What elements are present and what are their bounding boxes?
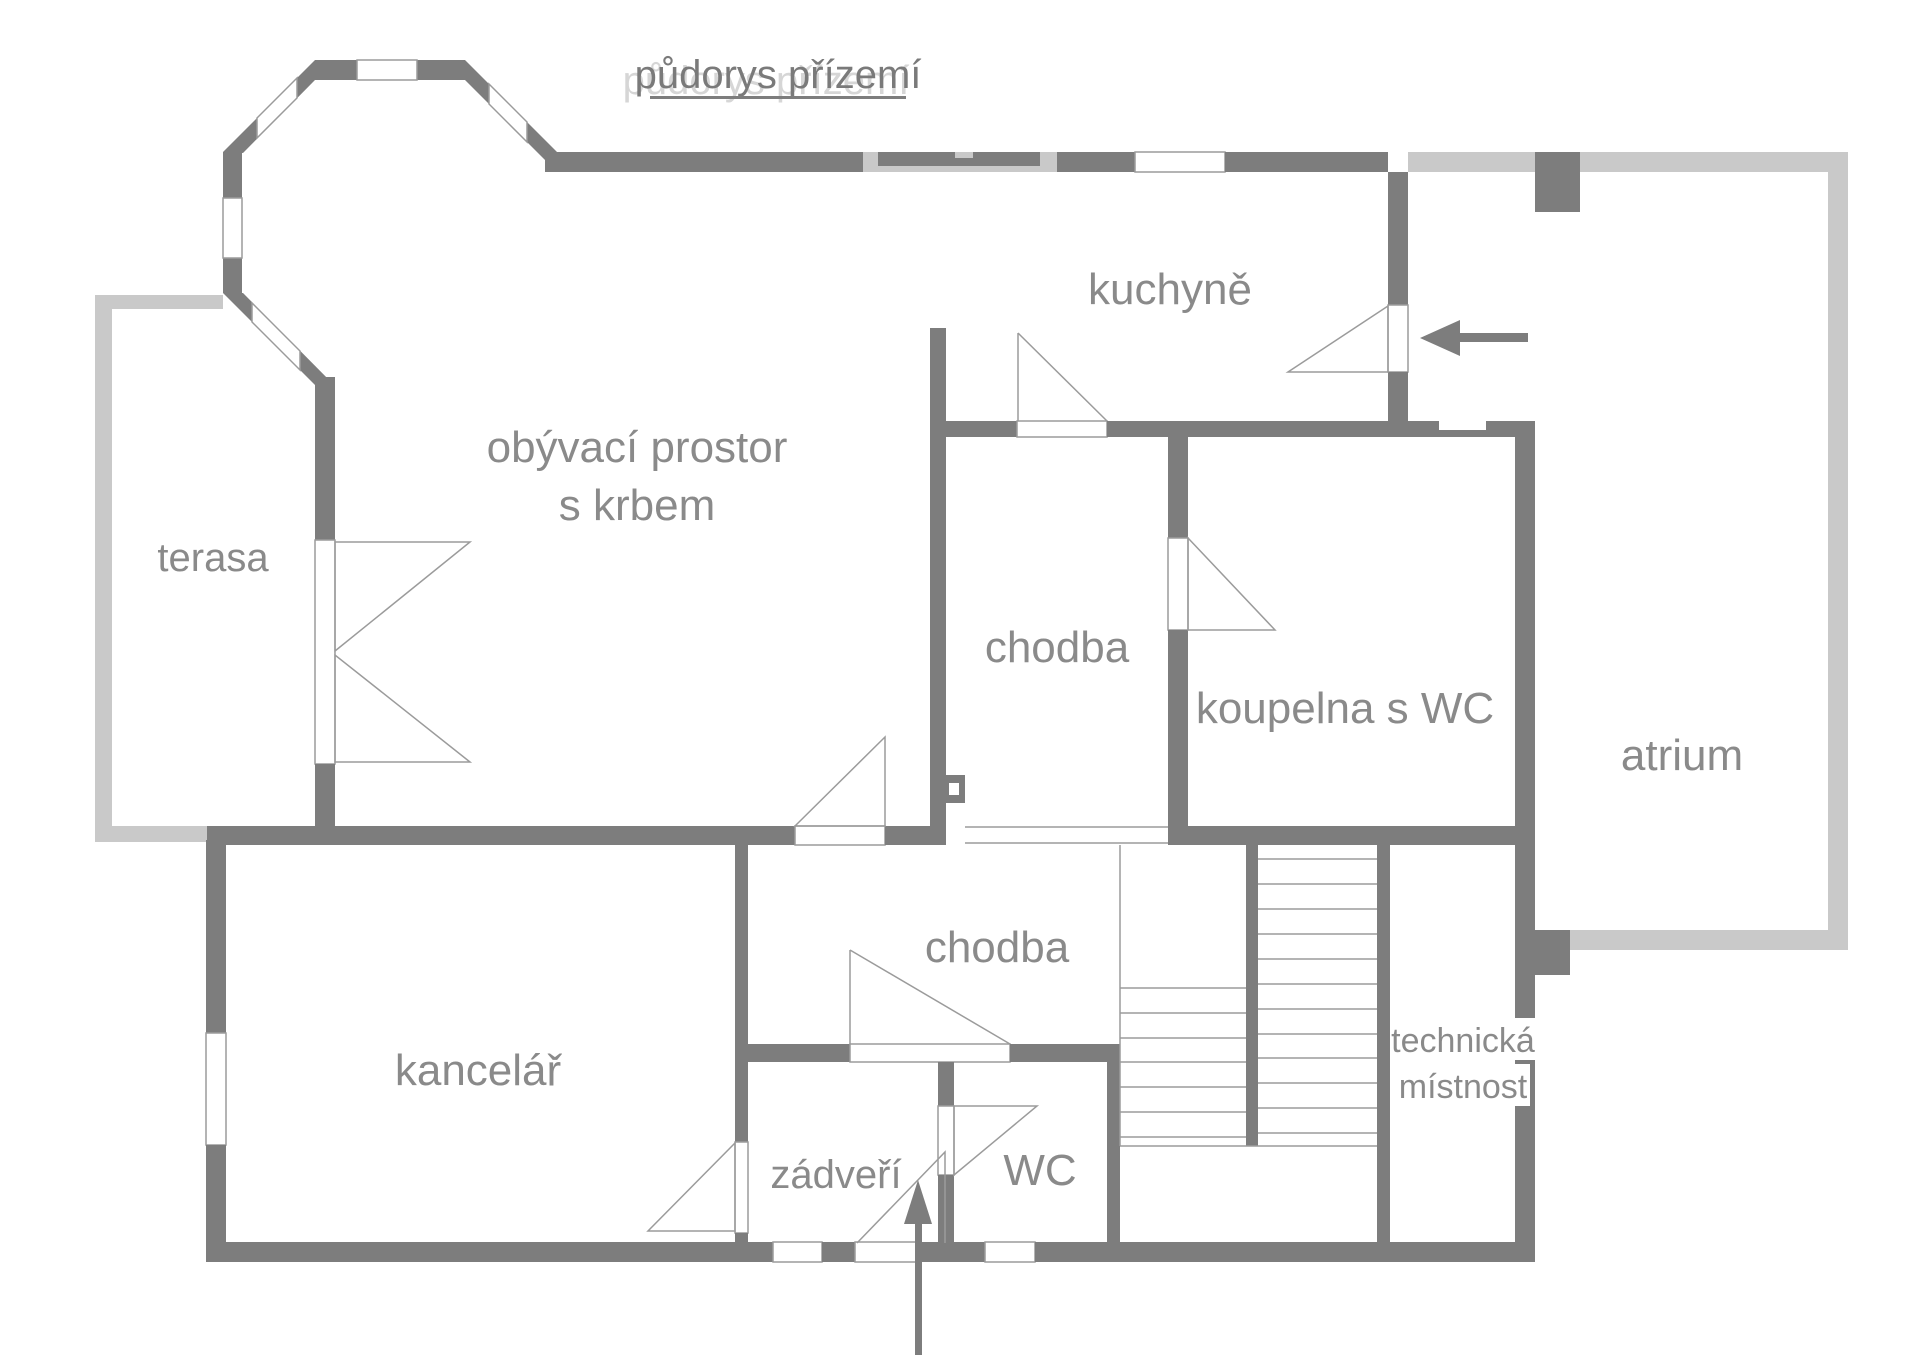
hall-west-wall [930,328,965,845]
label-technicka-line2: místnost [1399,1068,1528,1106]
koupelna-north-opening [1439,421,1486,430]
plan-title-text: půdorys přízemí [635,53,922,97]
label-zadveri: zádveří [770,1153,901,1197]
label-wc: WC [1003,1146,1076,1195]
kitchen-hall-door-swing [1018,333,1107,421]
label-atrium: atrium [1621,731,1743,780]
label-chodba-lower: chodba [925,923,1070,972]
bay-window-nw [257,78,297,138]
kitchen-north-window [1135,152,1225,172]
side-entrance-arrow-icon [1420,320,1528,356]
bay-window-sw [252,303,300,370]
fireplace-notch [955,152,973,158]
office-door [735,1142,748,1233]
stairs-east-wall [1377,845,1390,1242]
stairs-treads-right [1258,859,1377,1133]
stairs-middle-wall [1246,845,1258,1146]
label-obyvaci-line1: obývací prostor [487,423,788,472]
koupelna-door-swing [1188,538,1275,630]
floor-plan-page: půdorys přízemí půdorys přízemí [0,0,1920,1358]
kitchen-atrium-door-swing [1288,306,1388,372]
label-kancelar: kancelář [395,1046,563,1095]
living-room-west-wall [315,377,470,845]
long-middle-wall [207,737,1535,845]
bay-window-top [357,60,417,80]
south-window-2 [985,1242,1035,1262]
wc-east-wall [1107,1062,1120,1242]
office-west-window [206,1033,226,1145]
terrace-french-door [315,540,335,764]
office-door-swing [648,1143,735,1231]
french-door-swing-lower [335,655,470,762]
south-window-1 [773,1242,822,1262]
stairs-treads-left [1120,988,1246,1137]
kitchen-hall-door [1017,421,1107,437]
zadveri-hall-opening [850,1044,1010,1062]
bay-window-ne [489,84,527,142]
label-terasa: terasa [157,536,269,580]
chimney-block [1535,152,1580,212]
plan-title: půdorys přízemí půdorys přízemí [623,53,922,103]
hall-wall-pillar-core [949,783,959,795]
label-kuchyne: kuchyně [1088,265,1252,314]
label-technicka-line1: technická [1391,1022,1535,1060]
bay-windows [223,60,527,370]
living-hall-door-swing [795,737,885,826]
atrium-corner-block [1532,930,1570,975]
living-hall-door [795,826,885,845]
plan-title-underline [650,96,906,99]
french-door-swing-upper [335,542,470,651]
label-koupelna: koupelna s WC [1196,684,1494,733]
kitchen-atrium-door [1388,305,1408,372]
north-wall [545,152,1388,172]
label-chodba-upper: chodba [985,623,1130,672]
stairs [1120,845,1390,1242]
bay-window-west [223,198,242,258]
wc-door [938,1106,954,1175]
floor-plan: půdorys přízemí půdorys přízemí [0,0,1920,1358]
main-entrance-door [855,1242,917,1262]
zadveri-wc-walls [735,950,1120,1242]
main-entrance-arrow-icon [904,1180,932,1355]
koupelna-door [1168,538,1188,630]
label-obyvaci-line2: s krbem [559,481,715,530]
kitchen-east-wall [1288,172,1408,437]
